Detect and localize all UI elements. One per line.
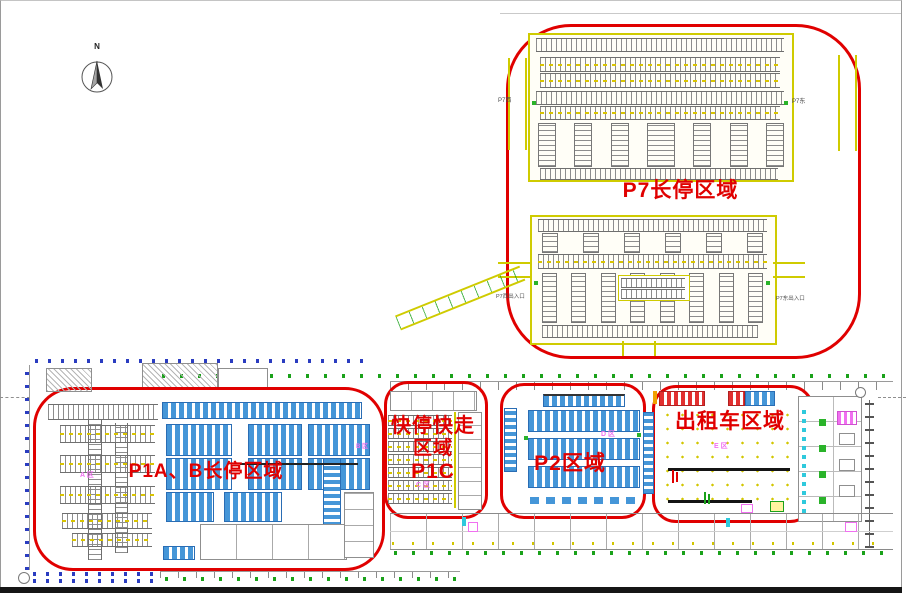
column-grid-dots (33, 579, 153, 583)
signal-marker (534, 281, 538, 285)
grid-bubble (18, 572, 30, 584)
signal-marker (524, 436, 528, 440)
cyan-fixture (726, 518, 730, 527)
marker-green (704, 492, 706, 504)
parking-row (540, 106, 780, 120)
room-cell (839, 459, 855, 471)
parking-row (60, 425, 155, 443)
north-service-building (218, 368, 268, 388)
green-fixture (819, 497, 826, 504)
east-building (798, 396, 862, 522)
area-d-label: D 区 (601, 431, 615, 438)
green-fixture (819, 419, 826, 426)
signal-marker (784, 101, 788, 105)
parking-cluster (730, 123, 748, 167)
viewport-bottom-bar (0, 587, 902, 593)
p7-zone-label: P7长停区域 (506, 180, 855, 201)
parking-cluster-row (542, 233, 763, 251)
parking-cluster (693, 123, 711, 167)
north-compass: N (77, 42, 117, 100)
compass-arrow-icon (77, 51, 117, 95)
parking-dash-row (530, 497, 636, 504)
p1c-zone-label-line1: 快停快走 (384, 416, 482, 436)
parking-cluster (747, 233, 763, 253)
parking-cluster-row (538, 123, 784, 165)
p1c-zone-label-line2: 区域 (384, 439, 482, 458)
parking-row (62, 513, 152, 529)
area-b-label: B 区 (356, 444, 368, 450)
parking-cluster (748, 273, 763, 323)
p1ab-zone-label: P1A、B长停区域 (33, 462, 379, 481)
parking-row-blue (162, 402, 362, 419)
north-wall-line (500, 13, 901, 14)
p1c-zone-label-line3: P1C (384, 461, 482, 482)
taxi-zone-label: 出租车区域 (652, 411, 808, 432)
room-cell (839, 485, 855, 497)
room-cell (839, 433, 855, 445)
parking-row-blue (745, 391, 775, 406)
parking-cluster (601, 273, 616, 323)
p7-east-entrance-label: P7东出入口 (776, 297, 805, 303)
signal-marker (532, 101, 536, 105)
signal-marker (766, 281, 770, 285)
grid-bubble (855, 387, 866, 398)
parking-cluster (542, 273, 557, 323)
parking-cluster (538, 123, 556, 167)
room-divider (390, 531, 893, 532)
parking-cluster-blue (308, 424, 370, 456)
parking-cluster-blue (248, 424, 302, 456)
p7-east-gate-label: P7东 (792, 99, 805, 105)
service-rooms (390, 391, 477, 411)
north-service-building (142, 363, 218, 389)
parking-row (540, 73, 780, 88)
marker-green (708, 494, 710, 504)
parking-cluster-blue (166, 492, 214, 522)
kiosk-box (770, 501, 784, 512)
parking-row (72, 533, 152, 547)
magenta-fixture (845, 522, 857, 532)
parking-cluster (542, 233, 558, 253)
small-building (46, 368, 92, 392)
kiosk-box (741, 504, 753, 513)
parking-row-red (659, 391, 705, 406)
p7-upper-parking-block (528, 33, 794, 182)
axis-centerline (878, 397, 906, 398)
green-fixture (819, 471, 826, 478)
parking-row-red (728, 391, 745, 406)
queue-barrier-line (668, 500, 752, 503)
parking-row (621, 289, 685, 299)
cyan-fixture (462, 517, 466, 526)
parking-cluster (706, 233, 722, 253)
magenta-fixture (468, 522, 478, 532)
room-divider (833, 397, 834, 521)
parking-cluster-blue (163, 546, 195, 560)
area-c-label: C 区 (416, 482, 430, 489)
parking-row (48, 404, 158, 420)
parking-row-blue (528, 410, 640, 432)
parking-plan-canvas: N P7西 P7东 P7长停区域 (0, 0, 908, 594)
column-grid-dots (33, 572, 153, 576)
cyan-fixture-strip (802, 405, 806, 513)
parking-row (538, 254, 767, 269)
p7-east-entrance-road (773, 262, 805, 278)
central-facility (618, 275, 690, 301)
marker-red (672, 470, 674, 483)
service-rooms (344, 492, 374, 558)
parking-row (542, 325, 758, 338)
column-dots-yellow (392, 542, 890, 545)
signal-marker (637, 433, 641, 437)
column-grid-dots (162, 374, 892, 378)
parking-row-blue (543, 394, 625, 407)
parking-row (540, 57, 780, 72)
marker-red (676, 472, 678, 482)
parking-cluster (665, 233, 681, 253)
parking-cluster (574, 123, 592, 167)
stall-marker-orange (653, 391, 657, 404)
parking-cluster (766, 123, 784, 167)
parking-cluster (624, 233, 640, 253)
parking-cluster (689, 273, 704, 323)
p7-west-entrance-label: P7西出入口 (496, 295, 525, 301)
parking-row (536, 38, 784, 52)
p7-east-road (838, 55, 857, 151)
parking-row (536, 91, 784, 105)
area-e-label: E 区 (714, 443, 728, 450)
p7-west-gate-label: P7西 (498, 98, 511, 104)
service-rooms (200, 524, 347, 560)
parking-row (60, 486, 155, 504)
parking-cluster (719, 273, 734, 323)
p7-south-road-stub (622, 341, 656, 356)
green-fixture (819, 445, 826, 452)
parking-cluster-blue (224, 492, 282, 522)
compass-north-label: N (77, 42, 117, 51)
parking-cluster (611, 123, 629, 167)
column-grid-dots (165, 577, 457, 581)
parking-cluster (583, 233, 599, 253)
parking-row (388, 493, 452, 504)
parking-cluster (571, 273, 586, 323)
p2-zone-label: P2区域 (500, 453, 640, 474)
parking-row (621, 278, 685, 288)
parking-row (538, 219, 767, 232)
parking-cluster (647, 123, 675, 167)
grid-line-vertical (29, 365, 30, 570)
magenta-stalls (837, 411, 857, 425)
p7-west-road (508, 58, 527, 150)
queue-barrier-line (668, 468, 790, 471)
parking-column-blue (643, 412, 654, 494)
parking-cluster-blue (166, 424, 232, 456)
p7-lower-parking-block (530, 215, 777, 345)
terminal-building-strip (390, 513, 893, 550)
column-grid-dots (394, 551, 884, 555)
